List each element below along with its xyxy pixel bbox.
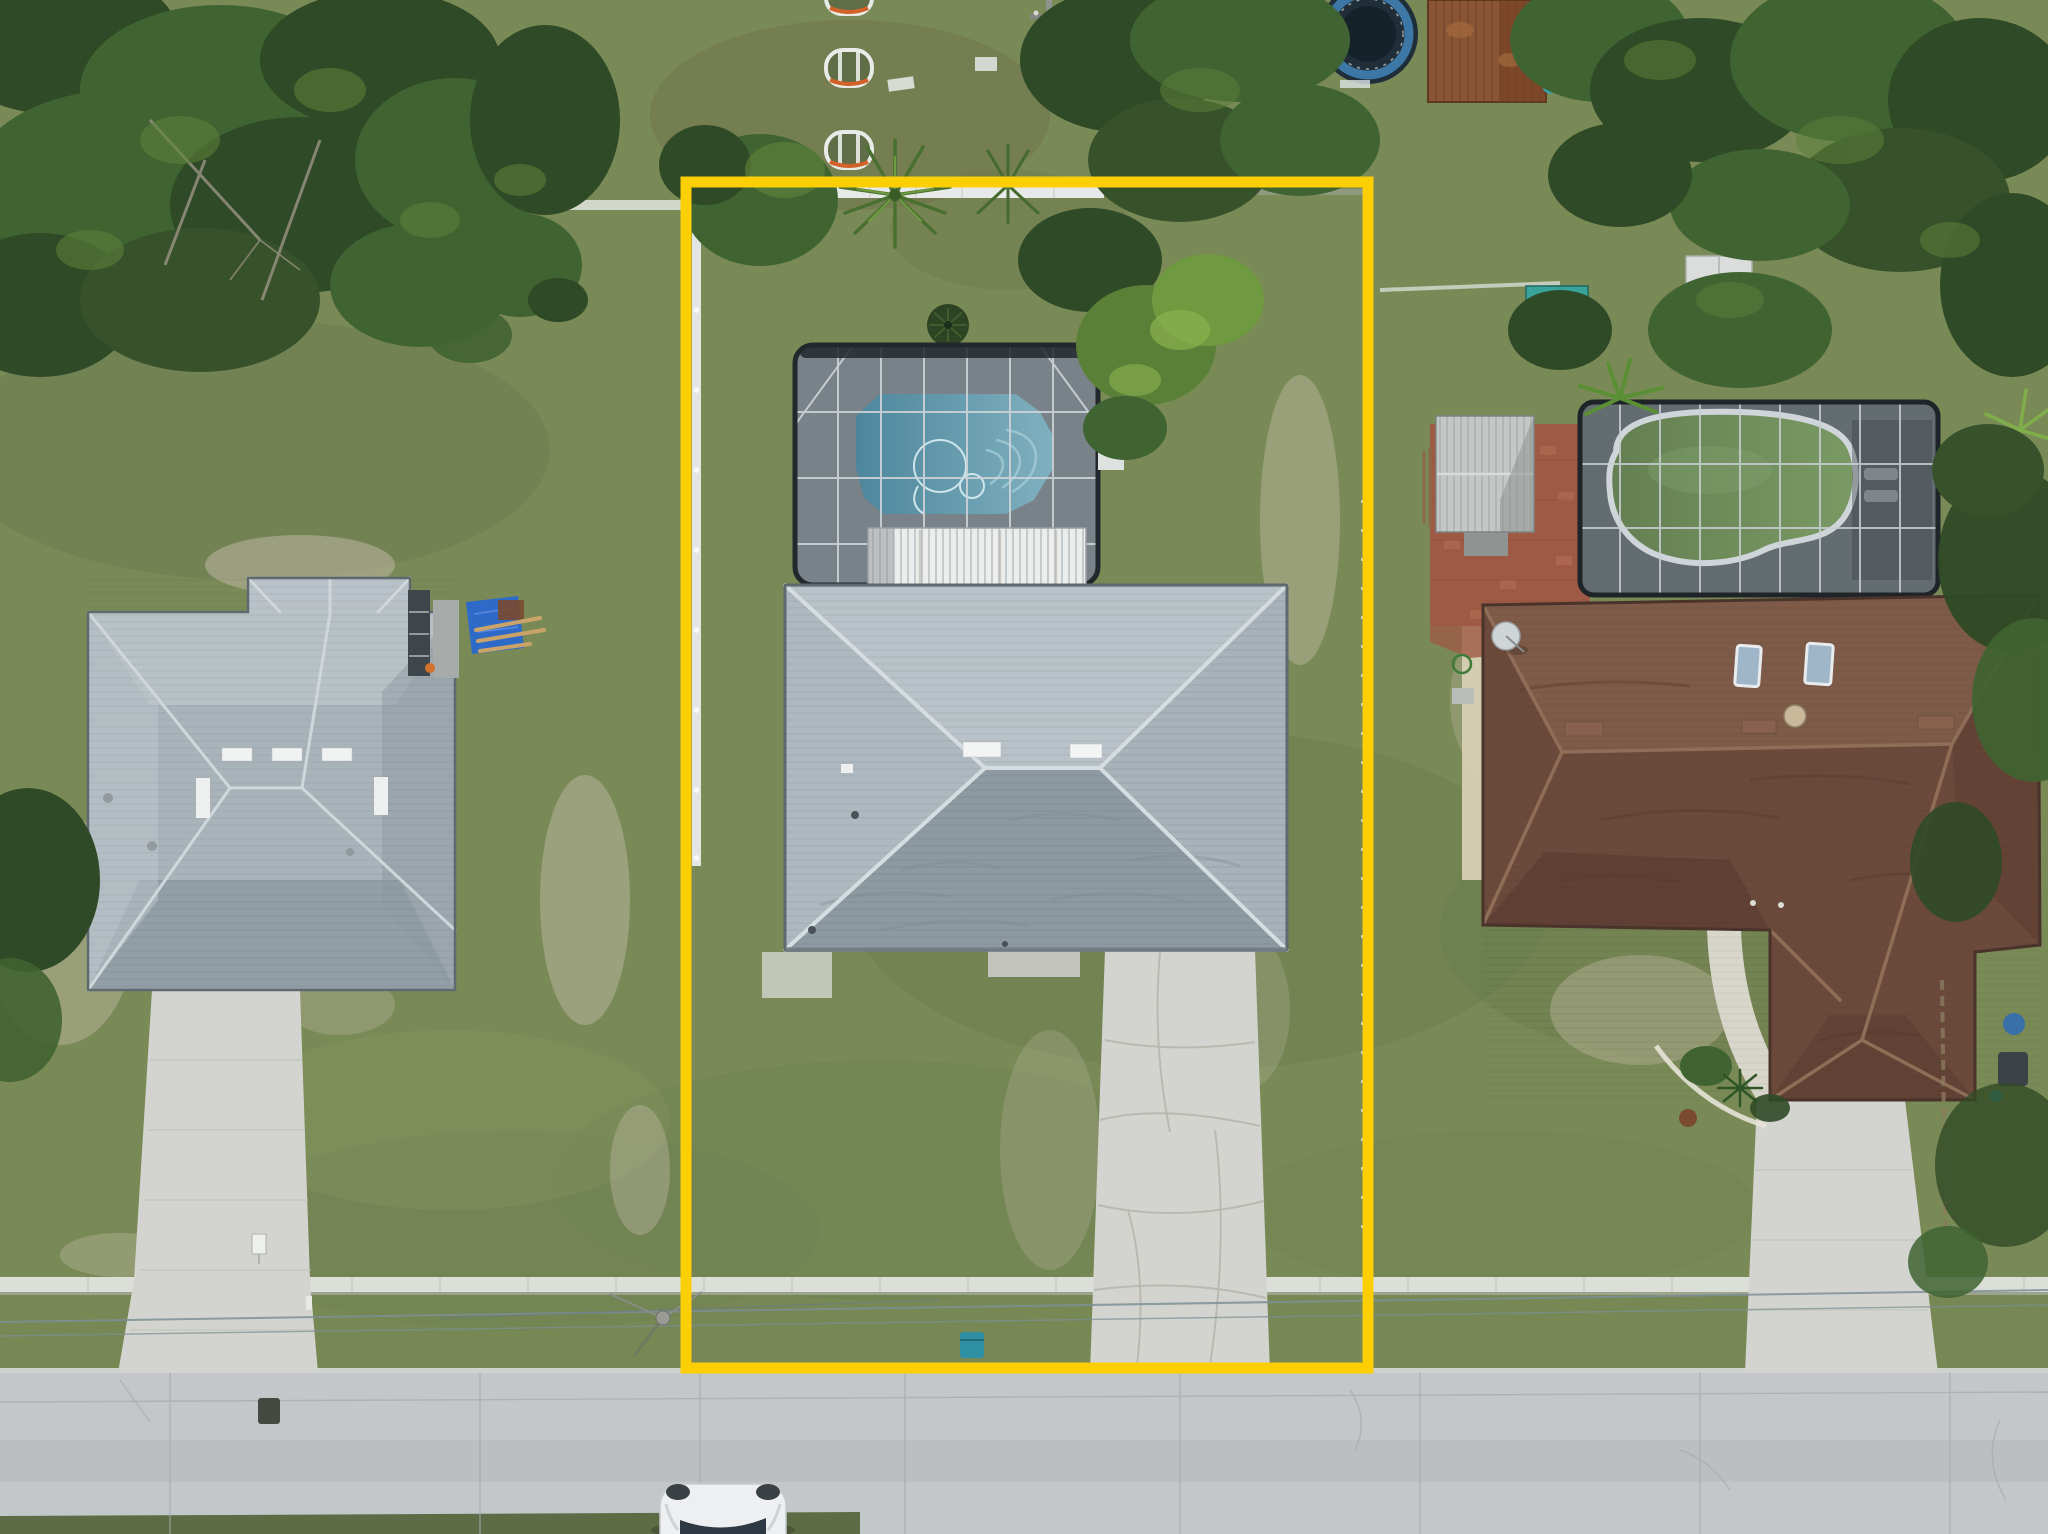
roof-gutter-shadow [785, 947, 1287, 952]
white-car [651, 1484, 795, 1534]
oval-planter [826, 50, 872, 86]
dark-bin [1998, 1052, 2028, 1086]
right-enclosure-shadow [1852, 420, 1932, 580]
left-house-side-pad [433, 600, 459, 678]
oval-planter [826, 132, 872, 168]
blue-barrel [2003, 1013, 2025, 1035]
ac-pad [988, 950, 1080, 977]
enclosure-top-band [800, 345, 1093, 358]
right-driveway [1745, 1100, 1938, 1373]
car-mirror-left [666, 1484, 690, 1500]
aerial-photo-canvas [0, 0, 2048, 1534]
white-item [975, 57, 997, 71]
patio-steps [1464, 530, 1508, 556]
screened-bay [408, 590, 430, 676]
street-tire-band [0, 1440, 2048, 1482]
side-fence-white [692, 198, 701, 866]
front-stoop [762, 952, 832, 998]
left-roof-shingle-texture [88, 578, 455, 990]
cycad-bush [927, 304, 969, 346]
subject-house-roof [785, 585, 1287, 952]
oval-planter [826, 0, 872, 14]
aerial-photo [0, 0, 2048, 1534]
green-pool-shimmer [1648, 446, 1772, 494]
lanai-roof [868, 528, 1086, 588]
orange-bucket [425, 663, 435, 673]
metal-shed [1424, 416, 1534, 532]
car-mirror-right [756, 1484, 780, 1500]
round-roof-vent [1784, 705, 1806, 727]
planter-pot [1679, 1109, 1697, 1127]
trash-bin [258, 1398, 280, 1424]
mail-post [306, 1296, 312, 1310]
right-pool-enclosure [1580, 402, 1938, 595]
trampoline-ladder [1340, 80, 1370, 88]
center-driveway [1090, 950, 1270, 1373]
small-pad [1452, 688, 1474, 704]
recycle-bin [960, 1332, 984, 1358]
